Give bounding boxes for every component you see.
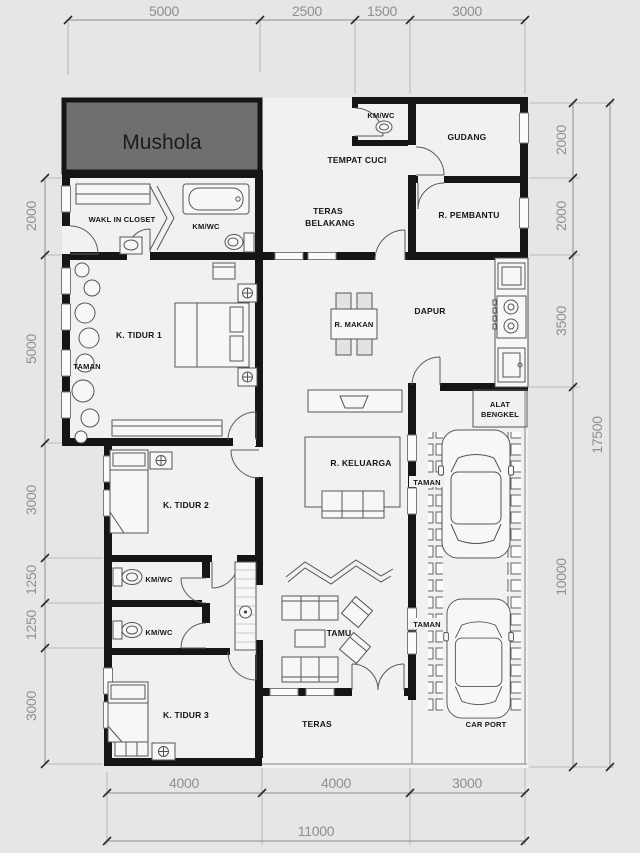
room-label-k-tidur-3: K. TIDUR 3: [163, 710, 209, 720]
dim-top-2: 2500: [292, 3, 322, 19]
room-label-alat-2: BENGKEL: [481, 410, 519, 419]
washbasin: [120, 237, 142, 254]
room-label-taman-right-lower: TAMAN: [413, 620, 441, 629]
dim-right-3: 3500: [553, 306, 569, 336]
dim-bottom-2: 4000: [321, 775, 351, 791]
car-1: [439, 430, 514, 558]
room-label-teras-belakang-1: TERAS: [313, 206, 343, 216]
room-label-k-tidur-2: K. TIDUR 2: [163, 500, 209, 510]
dim-bottom-3: 3000: [452, 775, 482, 791]
room-label-k-tidur-1: K. TIDUR 1: [116, 330, 162, 340]
room-label-taman-right-upper: TAMAN: [413, 478, 441, 487]
room-label-kmwc-2: KM/WC: [145, 628, 173, 637]
mushola-room: Mushola: [64, 100, 260, 172]
toilet-2: [113, 621, 142, 639]
dim-left-1: 2000: [23, 201, 39, 231]
toilet-top: [376, 121, 392, 133]
dim-left-3: 3000: [23, 485, 39, 515]
family-sofa: [322, 491, 384, 518]
room-label-r-makan: R. MAKAN: [334, 320, 373, 329]
sliding-door-unit: [235, 562, 256, 650]
room-label-kmwc-top: KM/WC: [367, 111, 395, 120]
room-label-tempat-cuci: TEMPAT CUCI: [327, 155, 386, 165]
room-label-tamu: TAMU: [327, 628, 352, 638]
room-label-alat-1: ALAT: [490, 400, 510, 409]
floor-plan-page: 5000 2500 1500 3000 4000 4000 3000 11000…: [0, 0, 640, 853]
room-label-teras: TERAS: [302, 719, 332, 729]
dim-top-4: 3000: [452, 3, 482, 19]
room-label-kmwc-main: KM/WC: [192, 222, 220, 231]
bathtub: [183, 184, 249, 214]
room-label-kmwc-1: KM/WC: [145, 575, 173, 584]
dim-right-2: 2000: [553, 201, 569, 231]
wardrobe: [112, 420, 222, 436]
room-label-mushola: Mushola: [122, 131, 202, 154]
dim-left-4: 1250: [23, 565, 39, 595]
room-label-taman-left: TAMAN: [73, 362, 101, 371]
kitchen-counter: [493, 258, 528, 387]
room-label-car-port: CAR PORT: [466, 720, 507, 729]
floor-plan: 5000 2500 1500 3000 4000 4000 3000 11000…: [0, 0, 640, 853]
dim-top-1: 5000: [149, 3, 179, 19]
car-2: [444, 599, 514, 718]
dim-left-2: 5000: [23, 334, 39, 364]
dim-left-6: 3000: [23, 691, 39, 721]
dim-bottom-1: 4000: [169, 775, 199, 791]
room-label-gudang: GUDANG: [448, 132, 487, 142]
dim-right-total: 17500: [589, 416, 605, 454]
room-label-wakl-in-closet: WAKL IN CLOSET: [89, 215, 156, 224]
dim-right-1: 2000: [553, 125, 569, 155]
dim-left-5: 1250: [23, 610, 39, 640]
room-label-dapur: DAPUR: [414, 306, 445, 316]
tv-cabinet: [308, 390, 402, 412]
dim-bottom-total: 11000: [298, 823, 335, 839]
dim-top-3: 1500: [367, 3, 397, 19]
room-label-r-pembantu: R. PEMBANTU: [438, 210, 499, 220]
double-bed: [175, 303, 249, 367]
dim-right-4: 10000: [553, 558, 569, 596]
room-label-teras-belakang-2: BELAKANG: [305, 218, 355, 228]
bedroom-chair: [213, 263, 235, 279]
room-label-r-keluarga: R. KELUARGA: [330, 458, 391, 468]
toilet-1: [113, 568, 142, 586]
